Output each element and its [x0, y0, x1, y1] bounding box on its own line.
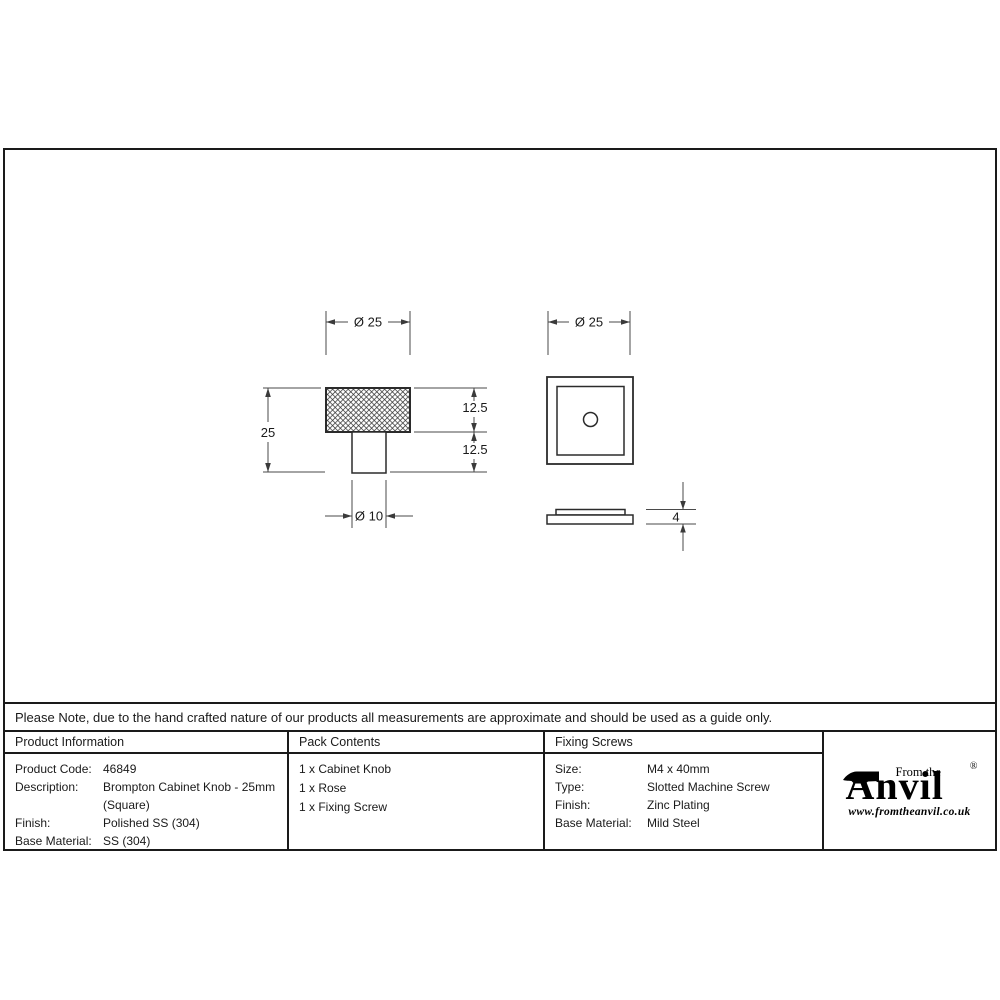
- column-pack-contents: Pack Contents 1 x Cabinet Knob 1 x Rose …: [289, 732, 545, 849]
- rose-thickness-dim-label: 4: [672, 510, 679, 525]
- rose-thickness-dimension: 4: [646, 482, 696, 551]
- row-label: Size:: [555, 760, 647, 778]
- stem-width-dimension: Ø 10: [325, 480, 413, 528]
- table-row: Base Material: SS (304): [15, 832, 277, 850]
- table-row: Type: Slotted Machine Screw: [555, 778, 812, 796]
- spec-sheet-page: { "note": { "text": "Please Note, due to…: [0, 0, 1000, 1000]
- rose-width-dimension: Ø 25: [548, 311, 630, 355]
- rose-side-base: [547, 515, 633, 524]
- column-brand: Anvil From the ® www.fromtheanvil.co.uk: [824, 732, 995, 849]
- front-width-dim-label: Ø 25: [354, 315, 382, 330]
- technical-drawing-area: Ø 25 25: [5, 150, 995, 704]
- technical-drawing: Ø 25 25: [5, 150, 995, 702]
- row-value: Polished SS (304): [103, 814, 277, 832]
- table-row: Size: M4 x 40mm: [555, 760, 812, 778]
- table-row: Base Material: Mild Steel: [555, 814, 812, 832]
- rose-screw-hole: [584, 413, 598, 427]
- table-row: Product Code: 46849: [15, 760, 277, 778]
- front-width-dimension: Ø 25: [326, 311, 410, 355]
- row-label: Base Material:: [15, 832, 103, 850]
- product-information-header: Product Information: [5, 732, 287, 754]
- brand-website: www.fromtheanvil.co.uk: [842, 806, 978, 818]
- row-label: Product Code:: [15, 760, 103, 778]
- front-height-dimension: 25: [261, 388, 325, 472]
- row-value: Zinc Plating: [647, 796, 812, 814]
- table-row: Finish: Polished SS (304): [15, 814, 277, 832]
- pack-contents-header: Pack Contents: [289, 732, 543, 754]
- front-height-dim-label: 25: [261, 425, 275, 440]
- head-height-dim-label: 12.5: [462, 400, 487, 415]
- list-item: 1 x Cabinet Knob: [299, 760, 533, 779]
- product-information-body: Product Code: 46849 Description: Brompto…: [5, 754, 287, 850]
- anvil-icon: [842, 770, 880, 784]
- rose-side-view: 4: [547, 482, 696, 551]
- row-value: Slotted Machine Screw: [647, 778, 812, 796]
- stem-width-dim-label: Ø 10: [355, 509, 383, 524]
- row-label: Description:: [15, 778, 103, 814]
- row-label: Type:: [555, 778, 647, 796]
- list-item: 1 x Rose: [299, 779, 533, 798]
- fixing-screws-header: Fixing Screws: [545, 732, 822, 754]
- table-row: Finish: Zinc Plating: [555, 796, 812, 814]
- registered-trademark: ®: [970, 761, 978, 772]
- list-item: 1 x Fixing Screw: [299, 798, 533, 817]
- pack-contents-body: 1 x Cabinet Knob 1 x Rose 1 x Fixing Scr…: [289, 754, 543, 817]
- spec-table: Product Information Product Code: 46849 …: [5, 732, 995, 849]
- anvil-logo: Anvil From the ® www.fromtheanvil.co.uk: [842, 760, 978, 822]
- row-value: SS (304): [103, 832, 277, 850]
- knob-stem: [352, 432, 386, 473]
- row-value: Mild Steel: [647, 814, 812, 832]
- stem-height-dim-label: 12.5: [462, 442, 487, 457]
- row-value: 46849: [103, 760, 277, 778]
- table-row: Description: Brompton Cabinet Knob - 25m…: [15, 778, 277, 814]
- row-value: M4 x 40mm: [647, 760, 812, 778]
- note-bar: Please Note, due to the hand crafted nat…: [5, 704, 995, 732]
- brand-prefix: From the: [896, 765, 941, 780]
- rose-width-dim-label: Ø 25: [575, 315, 603, 330]
- note-text: Please Note, due to the hand crafted nat…: [15, 710, 772, 725]
- rose-top-view: Ø 25: [547, 311, 633, 464]
- knob-front-view: Ø 25 25: [261, 311, 488, 528]
- row-label: Base Material:: [555, 814, 647, 832]
- column-fixing-screws: Fixing Screws Size: M4 x 40mm Type: Slot…: [545, 732, 824, 849]
- row-value: Brompton Cabinet Knob - 25mm (Square): [103, 778, 277, 814]
- column-product-information: Product Information Product Code: 46849 …: [5, 732, 289, 849]
- knob-head: [326, 388, 410, 432]
- row-label: Finish:: [15, 814, 103, 832]
- sheet-frame: Ø 25 25: [3, 148, 997, 851]
- rose-side-top: [556, 510, 625, 516]
- fixing-screws-body: Size: M4 x 40mm Type: Slotted Machine Sc…: [545, 754, 822, 832]
- row-label: Finish:: [555, 796, 647, 814]
